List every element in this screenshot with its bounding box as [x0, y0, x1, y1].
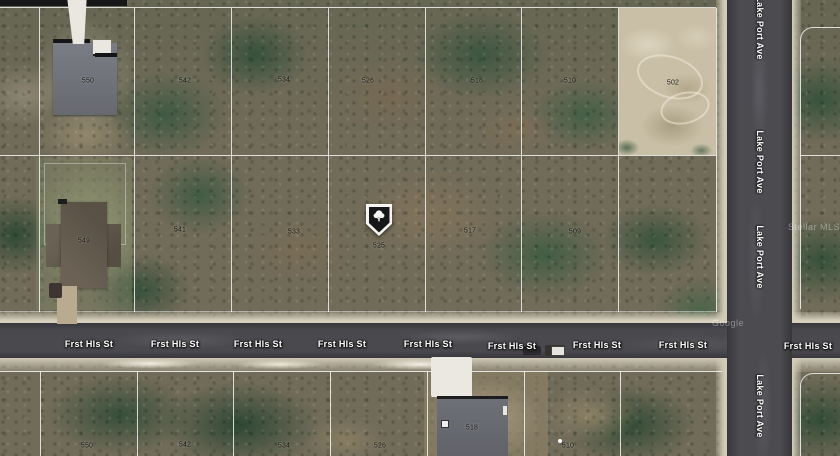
parked-car: [49, 283, 62, 298]
roof-eave: [58, 199, 67, 204]
lot-number: 502: [667, 80, 679, 87]
imagery-watermark: Google: [712, 318, 744, 328]
parcel-line: [618, 8, 619, 312]
parcel-line: [39, 8, 40, 312]
street-label-lake-port-ave: Lake Port Ave: [755, 374, 765, 437]
lot-number: 526: [362, 78, 374, 85]
lot-number: 510: [562, 443, 574, 450]
street-label-frst-hls-st: Frst Hls St: [65, 339, 113, 349]
parcel-line: [0, 371, 722, 372]
lot-number: 533: [288, 229, 300, 236]
street-label-frst-hls-st: Frst Hls St: [151, 339, 199, 349]
parcel-line: [524, 371, 525, 456]
roof-eave: [95, 53, 117, 57]
lot-number: 526: [374, 443, 386, 450]
parcel-line: [427, 371, 428, 456]
street-label-frst-hls-st: Frst Hls St: [404, 339, 452, 349]
lot-number: 542: [179, 442, 191, 449]
truck-cargo-box: [551, 346, 565, 356]
lot-number: 518: [466, 425, 478, 432]
parcel-line: [800, 373, 840, 456]
house-roof-549: [61, 202, 107, 288]
parcel-line: [0, 155, 716, 156]
lot-number: 509: [569, 229, 581, 236]
driveway-south: [431, 357, 472, 397]
lot-number: 550: [81, 443, 93, 450]
street-label-lake-port-ave: Lake Port Ave: [755, 0, 765, 60]
street-label-frst-hls-st: Frst Hls St: [573, 340, 621, 350]
parcel-line: [40, 371, 41, 456]
street-label-frst-hls-st: Frst Hls St: [234, 339, 282, 349]
roof-vent: [441, 420, 449, 428]
street-label-frst-hls-st: Frst Hls St: [784, 341, 832, 351]
parcel-line: [231, 8, 232, 312]
lot-number: 541: [174, 227, 186, 234]
street-label-frst-hls-st: Frst Hls St: [318, 339, 366, 349]
parcel-line: [0, 7, 716, 8]
lot-number: 550: [82, 78, 94, 85]
parcel-line: [425, 8, 426, 312]
satellite-map[interactable]: 550 542 534 526 518 510 502 549 541 533 …: [0, 0, 840, 456]
parcel-line: [620, 371, 621, 456]
parcel-line: [134, 8, 135, 312]
tree-pin-icon: [371, 208, 387, 224]
parcel-line: [328, 8, 329, 312]
top-road-edge: [0, 0, 127, 6]
parcel-line: [137, 371, 138, 456]
lot-number: 534: [278, 443, 290, 450]
lot-number: 549: [78, 238, 90, 245]
parcel-line: [233, 371, 234, 456]
roof-vent: [503, 406, 507, 415]
lot-number: 518: [471, 78, 483, 85]
mls-watermark: Stellar MLS: [788, 222, 840, 232]
parcel-line: [801, 155, 840, 156]
road-shoulder-south: [0, 358, 840, 372]
street-label-frst-hls-st: Frst Hls St: [488, 341, 536, 351]
property-marker-pin[interactable]: [366, 204, 392, 236]
parcel-line: [521, 8, 522, 312]
lot-number: 510: [564, 78, 576, 85]
street-label-lake-port-ave: Lake Port Ave: [755, 225, 765, 288]
street-label-lake-port-ave: Lake Port Ave: [755, 130, 765, 193]
parcel-line: [716, 8, 717, 312]
street-label-frst-hls-st: Frst Hls St: [659, 340, 707, 350]
lot-number-marker: 525: [373, 243, 385, 250]
parcel-line: [0, 311, 716, 312]
lot-number: 542: [179, 78, 191, 85]
roof-eave: [53, 39, 90, 43]
parcel-line: [330, 371, 331, 456]
parcel-line: [800, 27, 840, 309]
lot-number: 534: [278, 77, 290, 84]
lot-number: 517: [464, 228, 476, 235]
